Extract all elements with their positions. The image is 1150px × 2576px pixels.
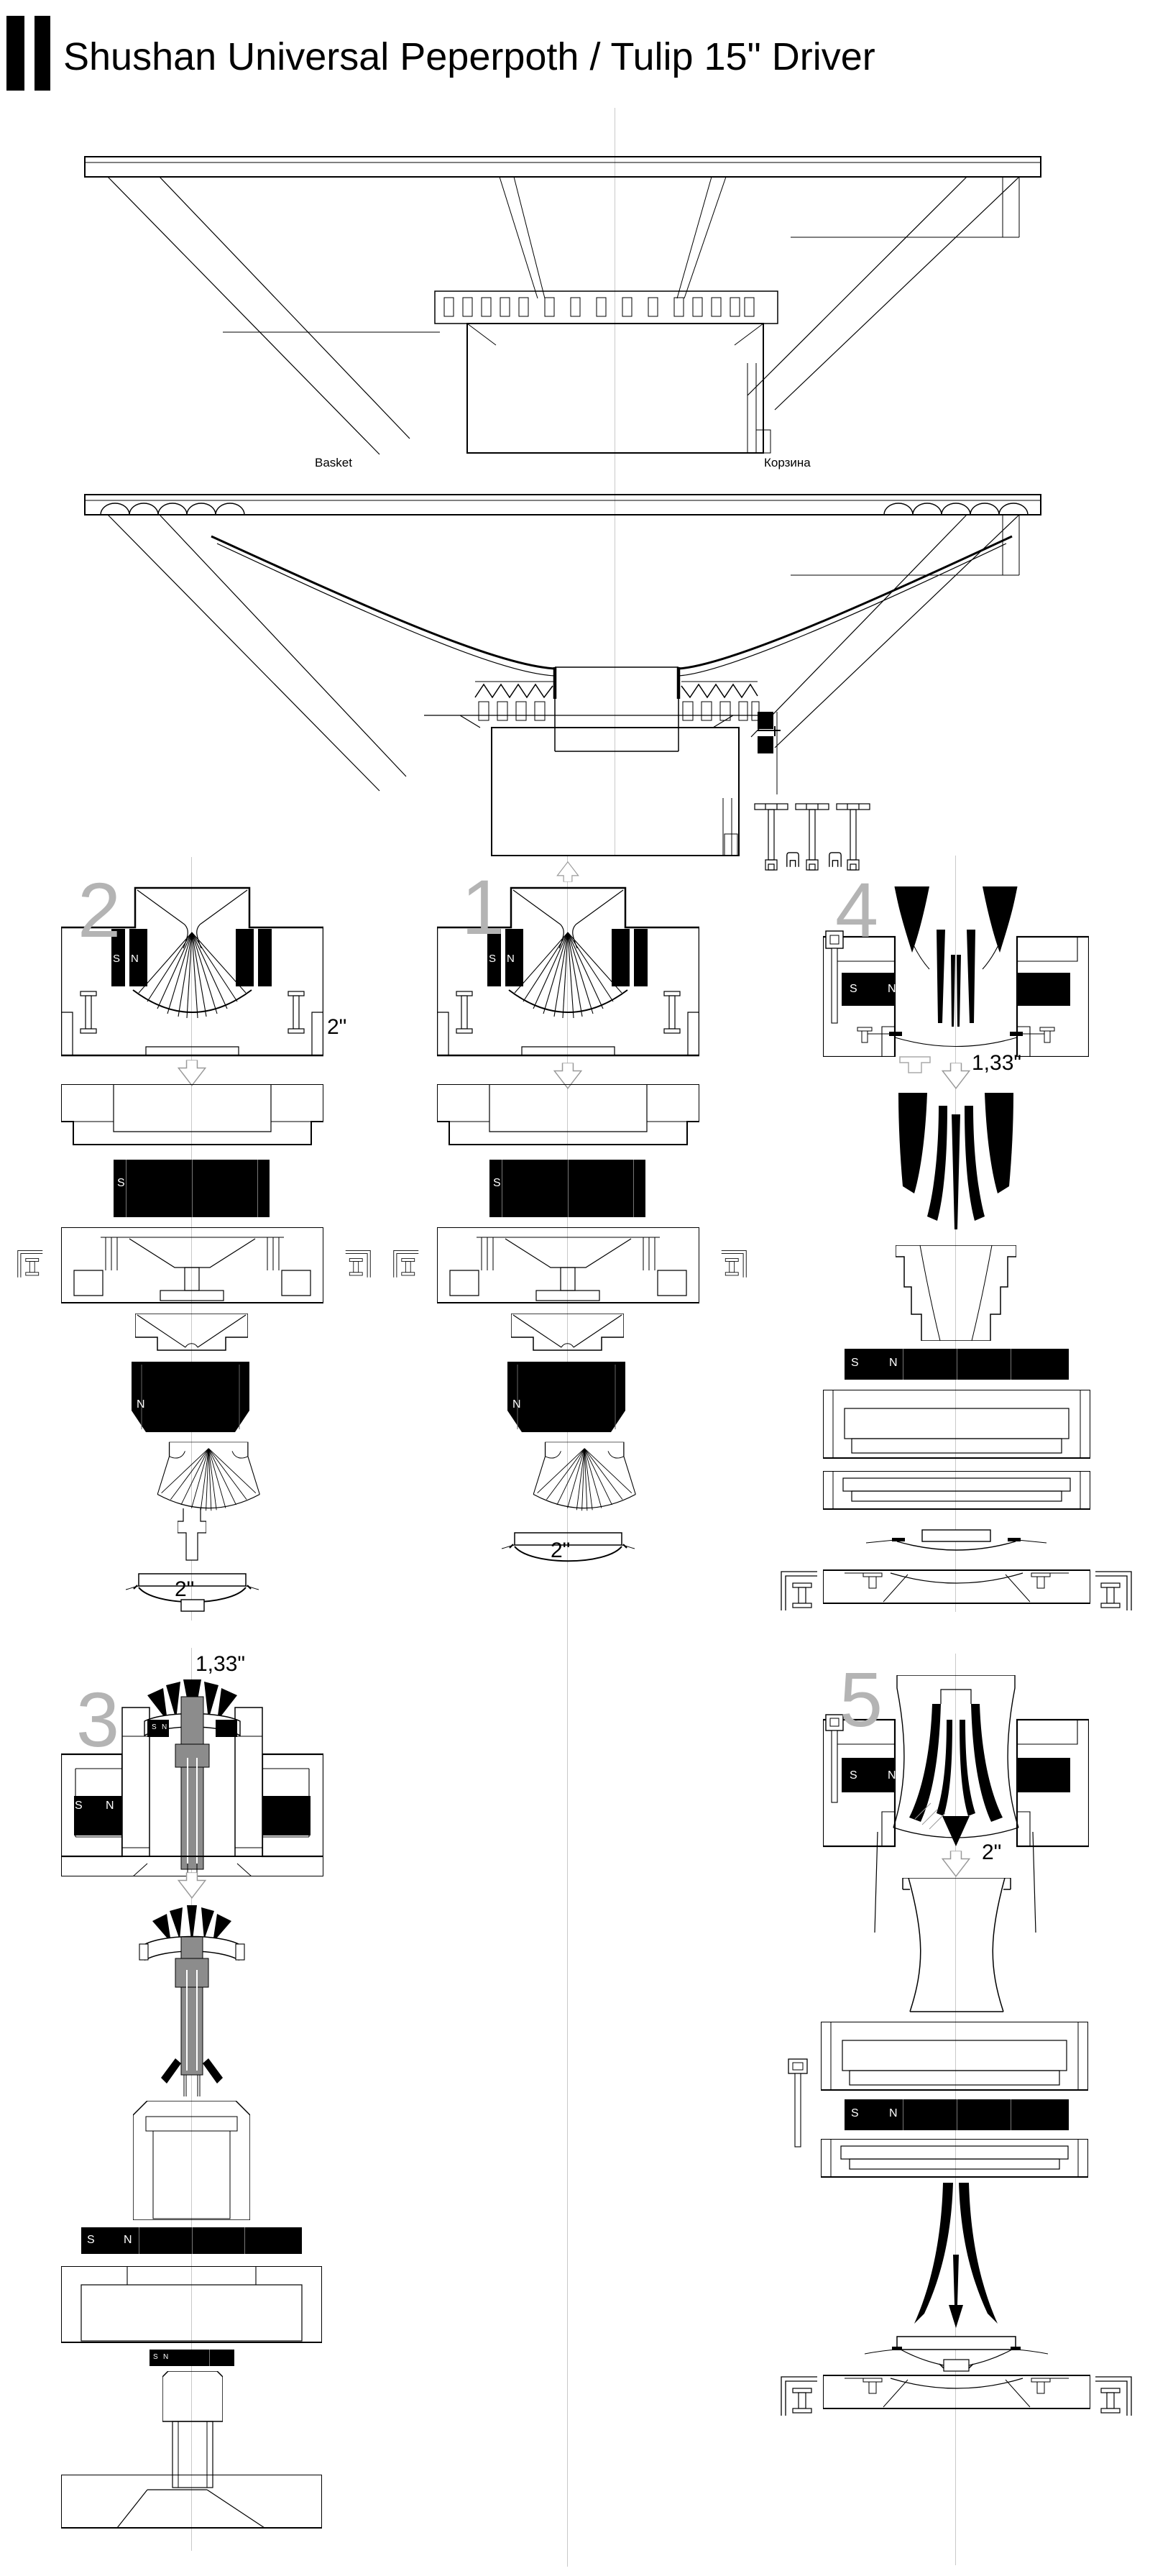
group-5-bottom-plate [823,2374,1090,2410]
group-4-magnet-bar [845,1349,1069,1380]
group-4-terminal-clip-2 [828,851,842,867]
group-5-frame-upper [821,2022,1088,2091]
group-1-number: 1 [461,868,505,946]
group-1-magnet-south-letter: S [493,1178,501,1189]
group-4-phase-plug-pot [896,1245,1016,1341]
group-2-top-plate [61,1084,323,1146]
group-1-magnet-south [489,1160,645,1217]
group-3-small-north-letter: N [163,2354,168,2361]
group-2-bracket-right [344,1229,372,1296]
group-5-flat-diaphragm [865,2335,1048,2373]
group-3-magnet-north-label: N [106,1800,114,1812]
group-1-bracket-left [392,1229,420,1296]
group-1-spider-fan [512,1439,630,1520]
group-5-side-bolt [787,2058,811,2148]
logo-bar-right [34,16,50,91]
group-2-dome-dimension: 2" [175,1579,194,1600]
group-5-magnet-bar [845,2099,1069,2130]
group-1-top-plate [437,1084,699,1146]
group-2-pole-piece [135,1314,248,1351]
group-5-magnet-south-letter: S [851,2108,859,2119]
group-4-magnet-north-letter: N [889,1357,898,1369]
group-5-magnet-north-letter: N [889,2108,898,2119]
group-3-top-plate-frame [61,2266,322,2344]
group-4-down-arrow [936,1063,976,1090]
group-5-bracket-left [778,2371,820,2417]
group-1-bracket-right [719,1229,748,1296]
group-4-ghost-pole [898,1055,931,1074]
group-1-dome-dimension: 2" [551,1540,570,1562]
group-2-back-plate [61,1227,323,1304]
group-3-pedestal-pole [162,2371,223,2489]
group-2-down-arrow [172,1060,212,1087]
drawing-sheet: Shushan Universal Peperpoth / Tulip 15" … [0,0,1150,2576]
page-title: Shushan Universal Peperpoth / Tulip 15" … [63,37,875,76]
group-3-magnet-south-letter: S [87,2234,95,2246]
group-4-bottom-plate [823,1569,1090,1605]
group-3-base-pot [61,2475,322,2529]
group-1-back-plate [437,1227,699,1304]
group-5-magnet-north-label: N [888,1770,896,1782]
driver-cross-section-drawing [79,489,1049,891]
group-1-magnet-north-label: N [507,953,515,964]
group-4-bracket-right [1092,1566,1134,1612]
basket-label-en: Basket [315,457,352,469]
group-1-magnet-north-letter: N [512,1399,521,1411]
group-2-bracket-left [16,1229,45,1296]
group-3-chip-north-label: N [162,1724,167,1731]
basket-label-ru: Корзина [764,457,811,469]
group-4-frame-lower [823,1471,1090,1511]
group-3-small-magnet-bar [149,2350,234,2366]
group-2-magnet-south-letter: S [117,1178,125,1189]
group-4-magnet-north-label: N [888,984,896,995]
group-3-down-arrow [172,1872,212,1899]
group-5-assembled-dimension: 2" [982,1842,1001,1864]
group-2-magnet-south [114,1160,270,1217]
basket-cross-section-drawing [79,101,1049,475]
group-1-magnet-south-label: S [489,953,496,964]
group-4-magnet-south-letter: S [851,1357,859,1369]
group-4-terminal-clip-1 [786,851,800,867]
group-3-assembled-dimension: 1,33" [195,1654,245,1675]
group-2-magnet-south-label: S [113,953,120,964]
group-5-frame-lower [821,2139,1088,2178]
group-4-frame-upper [823,1390,1090,1459]
group-5-down-arrow [936,1851,976,1878]
group-2-magnet-north-label: N [131,953,139,964]
group-2-magnet-north [132,1362,249,1434]
group-2-number: 2 [78,871,121,949]
group-4-number: 4 [835,871,878,949]
group-2-magnet-north-letter: N [137,1399,145,1411]
group-3-chip-south-label: S [152,1724,157,1731]
group-5-tulip-diaphragm [911,2183,1000,2328]
assembly-direction-up-arrow [552,858,584,884]
group-3-number: 3 [76,1681,119,1759]
group-3-magnet-south-label: S [75,1800,83,1812]
group-2-assembled-dimension: 2" [327,1017,346,1038]
group-5-magnet-south-label: S [850,1770,857,1782]
group-4-tulip-diaphragm [897,1093,1015,1238]
group-1-pole-piece [511,1314,624,1351]
group-3-small-south-letter: S [153,2354,158,2361]
group-2-fan-stem [178,1508,206,1562]
logo-bar-left [6,16,24,91]
group-3-square-pot [133,2101,250,2220]
group-3-tulip-shaft-assembly [138,1904,246,2098]
group-3-magnet-north-letter: N [124,2234,132,2246]
group-5-bracket-right [1092,2371,1134,2417]
group-4-shallow-dome [865,1528,1048,1556]
group-5-number: 5 [839,1661,883,1738]
group-4-assembled-dimension: 1,33" [972,1053,1021,1074]
group-5-waveguide-pole [900,1878,1013,2014]
group-3-magnet-bar [81,2227,302,2254]
group-1-magnet-north [507,1362,625,1434]
group-4-magnet-south-label: S [850,984,857,995]
group-4-bracket-left [778,1566,820,1612]
